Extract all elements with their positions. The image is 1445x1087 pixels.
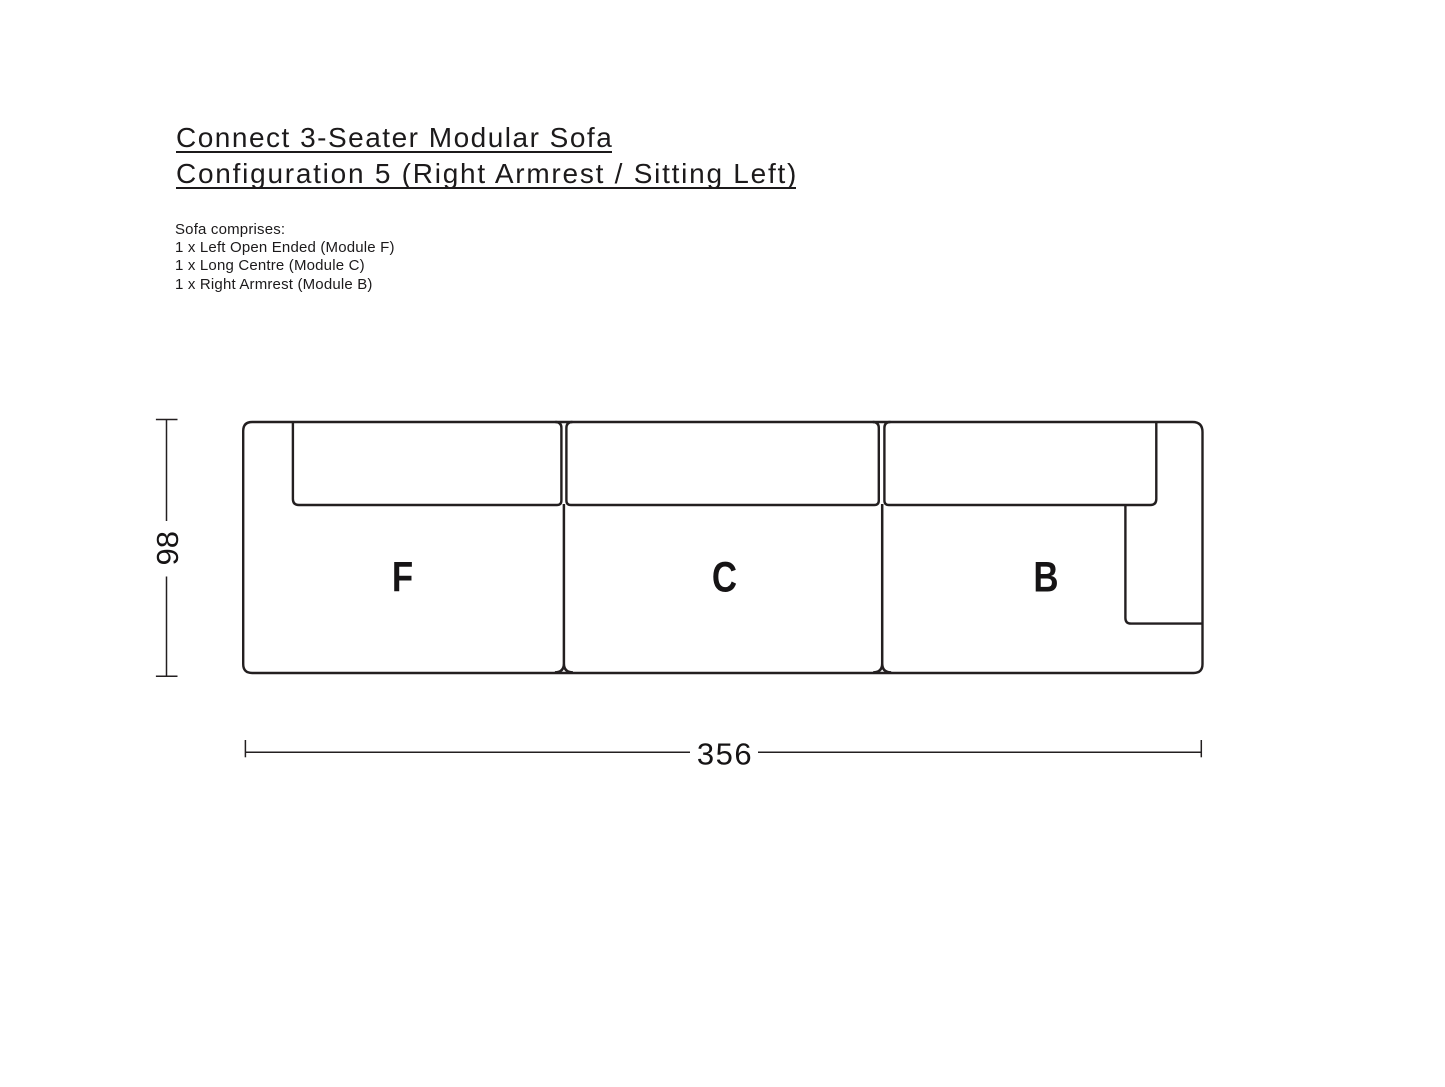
svg-text:C: C bbox=[712, 554, 737, 601]
svg-text:B: B bbox=[1033, 554, 1058, 601]
svg-text:356: 356 bbox=[697, 737, 753, 772]
svg-text:98: 98 bbox=[150, 531, 185, 565]
svg-text:F: F bbox=[392, 554, 413, 601]
